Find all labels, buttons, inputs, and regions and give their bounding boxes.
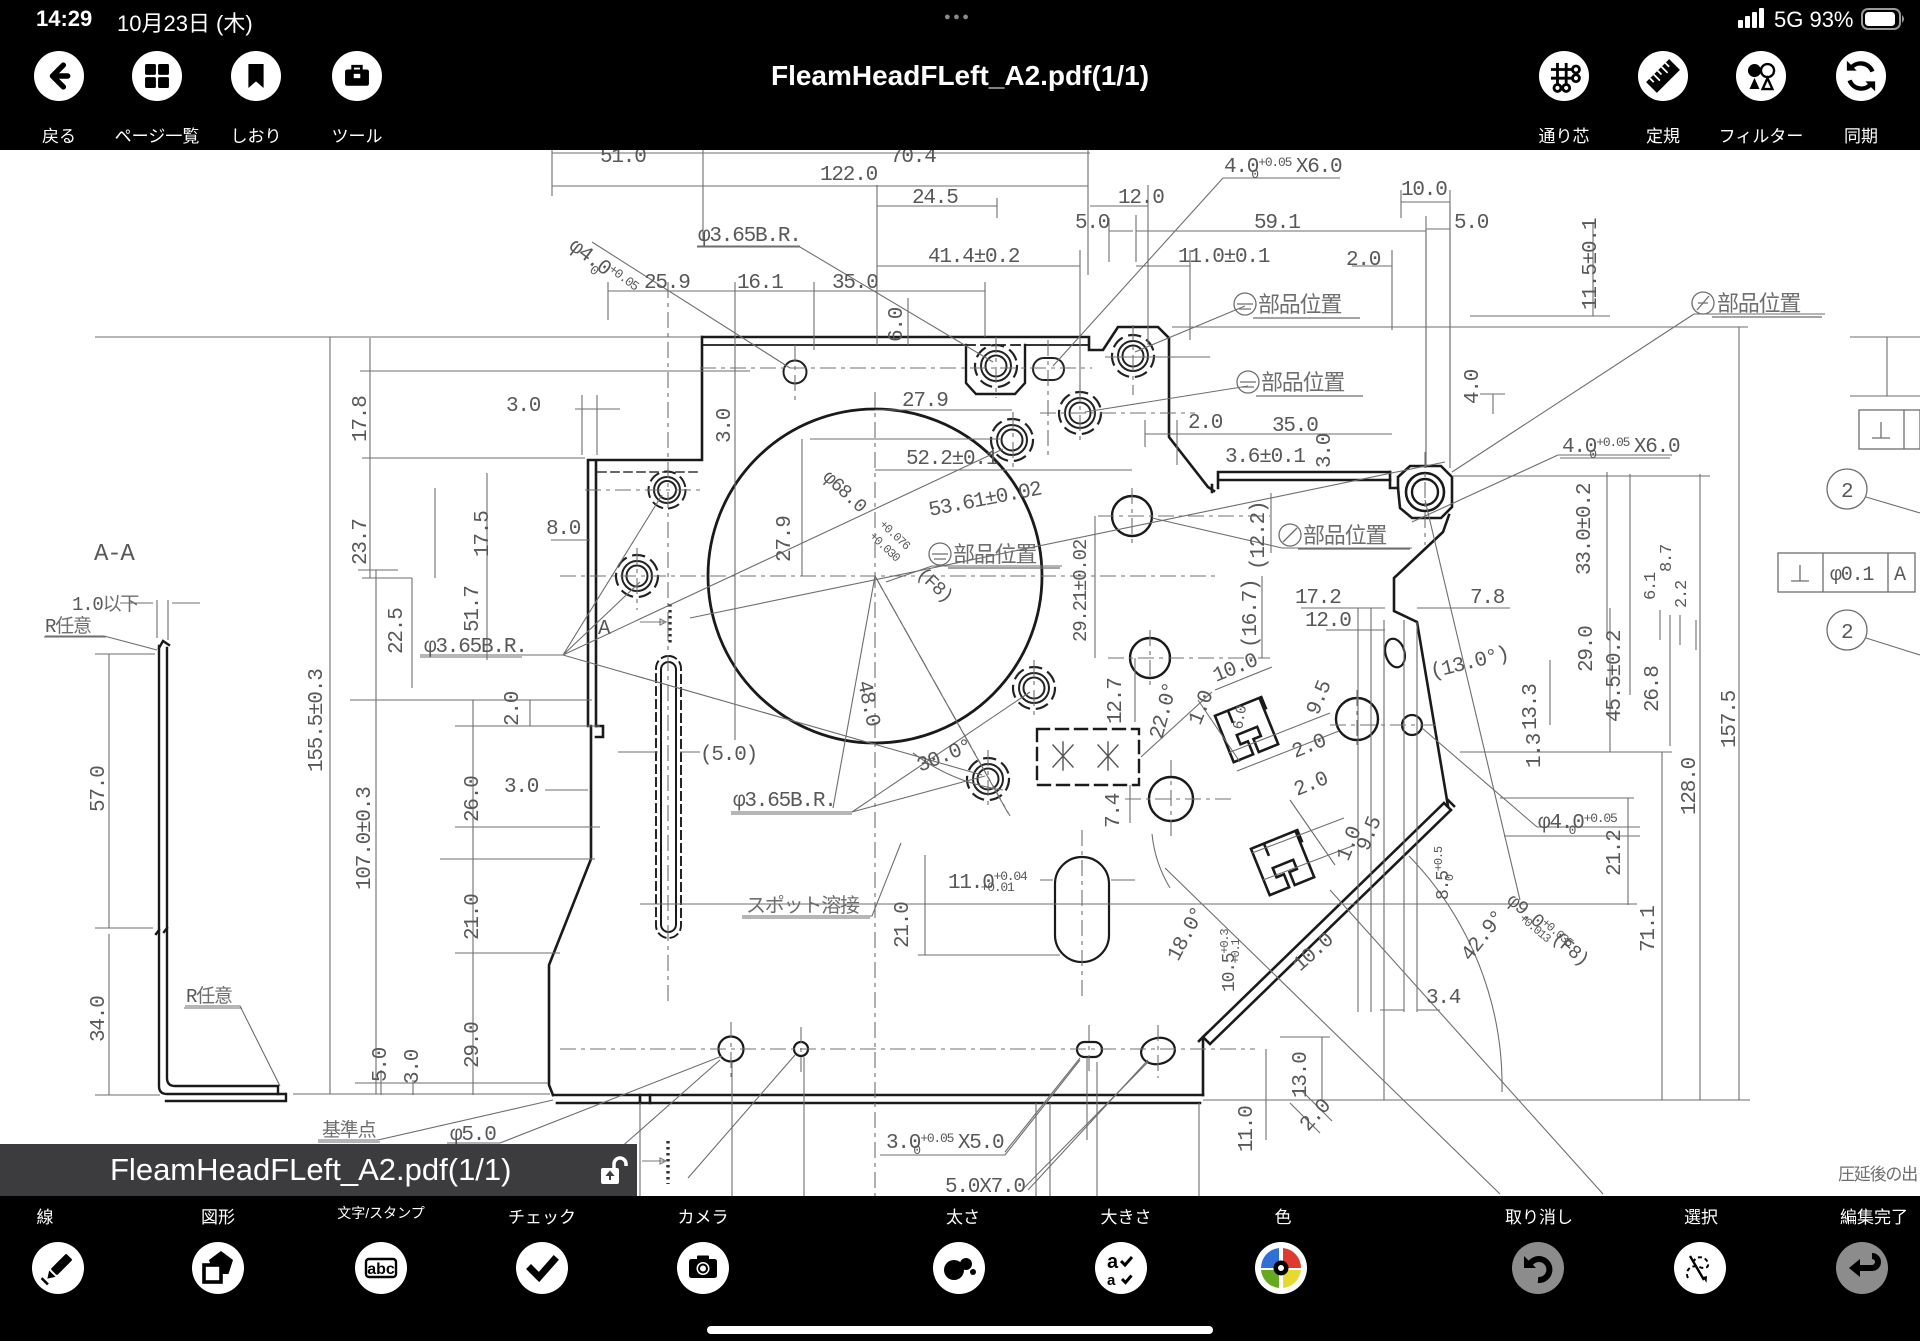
svg-text:45.5±0.2: 45.5±0.2 bbox=[1604, 630, 1627, 722]
svg-text:29.21±0.02: 29.21±0.02 bbox=[1070, 539, 1092, 642]
svg-text:2: 2 bbox=[1841, 622, 1853, 645]
svg-text:17.5: 17.5 bbox=[472, 511, 495, 557]
svg-text:2.0: 2.0 bbox=[1289, 730, 1330, 764]
svg-text:8.0: 8.0 bbox=[546, 518, 581, 541]
svg-text:53.61±0.02: 53.61±0.02 bbox=[927, 478, 1044, 522]
svg-text:11.5±0.1: 11.5±0.1 bbox=[1580, 218, 1603, 310]
svg-text:128.0: 128.0 bbox=[1679, 757, 1702, 815]
svg-text:13.0: 13.0 bbox=[1290, 1052, 1313, 1098]
svg-text:21.0: 21.0 bbox=[892, 902, 915, 948]
svg-text:11.0+0.04+0.01: 11.0+0.04+0.01 bbox=[948, 869, 1028, 895]
svg-text:2.0: 2.0 bbox=[1188, 412, 1223, 435]
svg-text:59.1: 59.1 bbox=[1254, 212, 1300, 235]
svg-text:13.3: 13.3 bbox=[1520, 684, 1543, 730]
svg-text:8.7: 8.7 bbox=[1658, 545, 1677, 572]
svg-text:33.0±0.2: 33.0±0.2 bbox=[1574, 483, 1597, 575]
svg-text:6.1: 6.1 bbox=[1642, 572, 1661, 600]
svg-text:10.0: 10.0 bbox=[1289, 929, 1339, 977]
svg-text:(F8): (F8) bbox=[912, 563, 957, 607]
svg-text:71.1: 71.1 bbox=[1638, 906, 1661, 952]
svg-text:2.0: 2.0 bbox=[1346, 249, 1381, 272]
svg-text:φ4.0+0.050: φ4.0+0.050 bbox=[562, 234, 641, 303]
svg-text:57.0: 57.0 bbox=[88, 766, 111, 812]
svg-text:a: a bbox=[1107, 1272, 1116, 1289]
svg-text:3.0: 3.0 bbox=[402, 1049, 425, 1084]
svg-text:5G 93%: 5G 93% bbox=[1774, 7, 1854, 32]
svg-text:スポット溶接: スポット溶接 bbox=[746, 894, 860, 917]
svg-text:10.0: 10.0 bbox=[1401, 179, 1447, 202]
svg-text:107.0±0.3: 107.0±0.3 bbox=[354, 787, 377, 890]
svg-text:φ3.65B.R.: φ3.65B.R. bbox=[424, 636, 527, 659]
svg-text:3.6±0.1: 3.6±0.1 bbox=[1225, 446, 1305, 469]
svg-text:42.9°: 42.9° bbox=[1457, 907, 1510, 966]
svg-text:A: A bbox=[598, 618, 611, 641]
svg-text:部品位置: 部品位置 bbox=[1258, 292, 1341, 317]
svg-text:部品位置: 部品位置 bbox=[1303, 523, 1386, 548]
svg-text:R任意: R任意 bbox=[45, 615, 91, 638]
svg-text:φ9.0+0.035+0.013(F8): φ9.0+0.035+0.013(F8) bbox=[1500, 890, 1592, 973]
svg-text:48.0: 48.0 bbox=[851, 679, 883, 729]
svg-text:基準点: 基準点 bbox=[322, 1119, 377, 1141]
svg-text:23.7: 23.7 bbox=[350, 519, 373, 565]
svg-text:3.0: 3.0 bbox=[506, 395, 541, 418]
svg-text:21.0: 21.0 bbox=[462, 894, 485, 940]
svg-text:22.0°: 22.0° bbox=[1147, 681, 1184, 742]
svg-text:35.0: 35.0 bbox=[1272, 415, 1318, 438]
svg-text:5.0: 5.0 bbox=[1075, 212, 1110, 235]
svg-text:φ0.1: φ0.1 bbox=[1830, 564, 1874, 587]
svg-text:A: A bbox=[1894, 564, 1906, 587]
svg-text:3.0+0.050X5.0: 3.0+0.050X5.0 bbox=[886, 1131, 1004, 1158]
svg-text:11.0: 11.0 bbox=[1236, 1106, 1259, 1152]
svg-text:φ68.0: φ68.0 bbox=[818, 466, 871, 517]
svg-text:157.5: 157.5 bbox=[1719, 690, 1742, 748]
svg-text:(12.2): (12.2) bbox=[1248, 502, 1271, 570]
svg-text:27.9: 27.9 bbox=[774, 516, 797, 562]
svg-text:abc: abc bbox=[367, 1261, 395, 1278]
svg-text:26.8: 26.8 bbox=[1642, 666, 1665, 712]
svg-text:52.2±0.1: 52.2±0.1 bbox=[906, 448, 998, 471]
svg-text:22.5: 22.5 bbox=[386, 608, 409, 654]
svg-text:3.0: 3.0 bbox=[1314, 433, 1337, 468]
svg-text:部品位置: 部品位置 bbox=[953, 542, 1036, 567]
svg-text:A-A: A-A bbox=[94, 541, 135, 568]
svg-text:φ3.65B.R.: φ3.65B.R. bbox=[698, 225, 801, 248]
svg-text:25.9: 25.9 bbox=[644, 272, 690, 295]
svg-text:4.0: 4.0 bbox=[1462, 369, 1485, 404]
svg-text:155.5±0.3: 155.5±0.3 bbox=[306, 669, 329, 772]
svg-text:6.0: 6.0 bbox=[886, 307, 909, 342]
svg-text:9.5: 9.5 bbox=[1303, 678, 1337, 719]
svg-text:8.5+0.50: 8.5+0.50 bbox=[1432, 846, 1457, 900]
svg-text:122.0: 122.0 bbox=[820, 164, 878, 187]
svg-text:(13.0°): (13.0°) bbox=[1428, 643, 1511, 685]
svg-text:10.0: 10.0 bbox=[1210, 650, 1261, 689]
svg-text:27.9: 27.9 bbox=[902, 390, 948, 413]
svg-text:7.8: 7.8 bbox=[1470, 587, 1505, 610]
svg-text:41.4±0.2: 41.4±0.2 bbox=[928, 246, 1020, 269]
svg-text:5.0: 5.0 bbox=[1454, 212, 1489, 235]
svg-text:21.2: 21.2 bbox=[1604, 830, 1627, 876]
svg-text:1.0以下: 1.0以下 bbox=[72, 594, 138, 616]
svg-text:2.0: 2.0 bbox=[1296, 1095, 1336, 1136]
svg-text:10.5+0.3+0.1: 10.5+0.3+0.1 bbox=[1218, 929, 1243, 992]
svg-text:圧延後の出っ張り不: 圧延後の出っ張り不 bbox=[1838, 1165, 1920, 1184]
svg-text:11.0±0.1: 11.0±0.1 bbox=[1178, 246, 1270, 269]
svg-text:φ3.65B.R.: φ3.65B.R. bbox=[733, 790, 836, 813]
svg-text:5.0: 5.0 bbox=[370, 1047, 393, 1082]
svg-text:(5.0): (5.0) bbox=[700, 744, 757, 767]
svg-text:16.1: 16.1 bbox=[737, 272, 783, 295]
svg-text:3.0: 3.0 bbox=[504, 776, 539, 799]
svg-text:2.0: 2.0 bbox=[1291, 768, 1332, 802]
svg-text:部品位置: 部品位置 bbox=[1261, 370, 1344, 395]
svg-text:6.0: 6.0 bbox=[1230, 704, 1251, 731]
svg-text:3.0: 3.0 bbox=[714, 408, 737, 443]
svg-text:12.0: 12.0 bbox=[1305, 610, 1351, 633]
svg-text:R任意: R任意 bbox=[186, 985, 232, 1008]
svg-text:2: 2 bbox=[1841, 481, 1853, 504]
svg-text:12.7: 12.7 bbox=[1105, 678, 1128, 724]
svg-text:17.8: 17.8 bbox=[350, 396, 373, 442]
svg-text:12.0: 12.0 bbox=[1118, 187, 1164, 210]
svg-text:29.0: 29.0 bbox=[462, 1022, 485, 1068]
svg-text:(16.7): (16.7) bbox=[1240, 580, 1263, 648]
svg-text:51.7: 51.7 bbox=[462, 586, 485, 632]
svg-text:2.0: 2.0 bbox=[502, 691, 525, 726]
svg-text:2.2: 2.2 bbox=[1673, 581, 1692, 608]
svg-text:3.4: 3.4 bbox=[1426, 987, 1461, 1010]
svg-text:17.2: 17.2 bbox=[1295, 587, 1341, 610]
svg-text:24.5: 24.5 bbox=[912, 187, 958, 210]
svg-text:7.4: 7.4 bbox=[1103, 793, 1126, 828]
svg-text:18.0°: 18.0° bbox=[1164, 904, 1211, 965]
svg-text:35.0: 35.0 bbox=[832, 272, 878, 295]
svg-text:34.0: 34.0 bbox=[88, 996, 111, 1042]
svg-text:1.0: 1.0 bbox=[1185, 688, 1219, 729]
svg-text:a: a bbox=[1107, 1251, 1119, 1273]
svg-text:部品位置: 部品位置 bbox=[1717, 291, 1800, 316]
svg-text:29.0: 29.0 bbox=[1576, 626, 1599, 672]
svg-text:26.0: 26.0 bbox=[462, 776, 485, 822]
svg-text:1.3: 1.3 bbox=[1524, 733, 1547, 768]
